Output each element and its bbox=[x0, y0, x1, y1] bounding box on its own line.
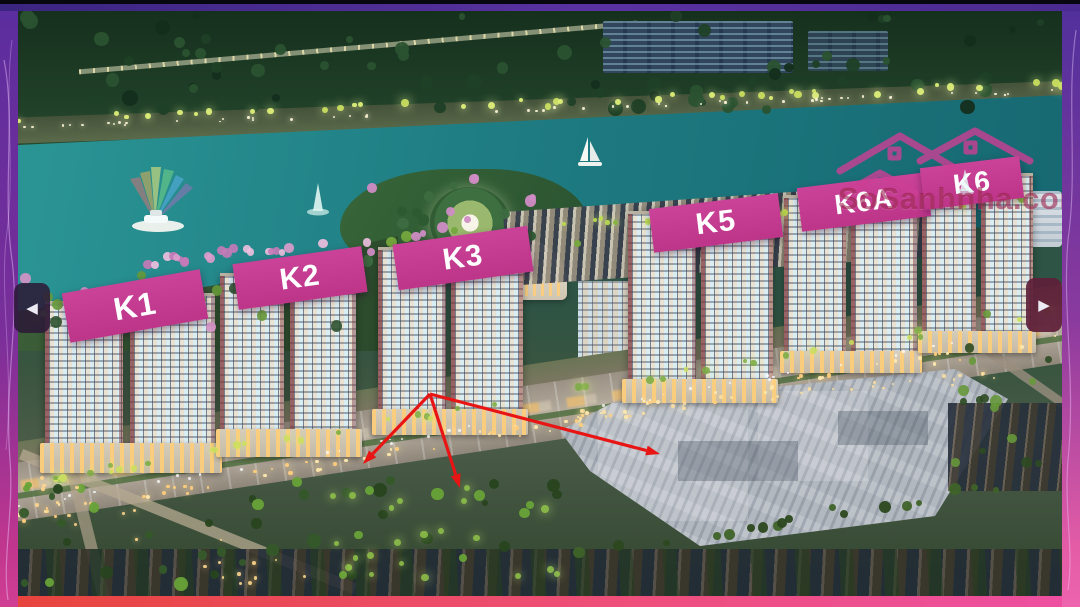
aerial-render-photo: K1 K2 K3 K5 K6A K6 bbox=[18, 11, 1062, 596]
decor-dot bbox=[386, 476, 395, 485]
decor-dot bbox=[397, 498, 403, 504]
decor-dot bbox=[526, 501, 534, 509]
decor-dot bbox=[299, 489, 309, 499]
podium-k6 bbox=[918, 331, 1036, 353]
podium-k3 bbox=[372, 409, 528, 435]
previous-image-button[interactable]: ◀ bbox=[14, 283, 50, 333]
chevron-left-icon: ◀ bbox=[26, 299, 38, 317]
decor-dot bbox=[122, 512, 125, 515]
decor-dot bbox=[489, 479, 499, 489]
decor-dot bbox=[993, 377, 995, 379]
bottom-gradient-bar bbox=[0, 596, 1080, 607]
next-image-button[interactable]: ▶ bbox=[1026, 278, 1062, 332]
distant-buildings bbox=[808, 31, 888, 71]
label-text: K3 bbox=[441, 238, 486, 277]
decor-dot bbox=[547, 479, 560, 492]
label-text: K5 bbox=[694, 204, 738, 243]
chevron-right-icon: ▶ bbox=[1038, 296, 1050, 314]
decor-dot bbox=[365, 486, 374, 495]
decor-dot bbox=[378, 510, 388, 520]
decor-dot bbox=[373, 483, 386, 496]
listing-photo-viewer: K1 K2 K3 K5 K6A K6 bbox=[0, 0, 1080, 607]
decor-dot bbox=[519, 508, 529, 518]
podium-k1 bbox=[40, 443, 222, 473]
podium-k5 bbox=[622, 379, 778, 403]
decor-dot bbox=[249, 495, 257, 503]
decor-dot bbox=[420, 531, 428, 539]
decor-dot bbox=[482, 500, 488, 506]
decor-dot bbox=[421, 533, 433, 545]
decor-dot bbox=[67, 514, 70, 517]
podium-k2 bbox=[216, 429, 362, 457]
decor-dot bbox=[349, 492, 356, 499]
decor-dot bbox=[461, 498, 467, 504]
decor-dot bbox=[389, 505, 395, 511]
decor-dot bbox=[57, 519, 65, 527]
bottom-villas bbox=[18, 549, 1062, 596]
decor-dot bbox=[473, 535, 479, 541]
decor-dot bbox=[74, 523, 78, 527]
decor-dot bbox=[334, 541, 339, 546]
decor-dot bbox=[251, 518, 262, 529]
decor-dot bbox=[252, 499, 264, 511]
label-text: K2 bbox=[278, 258, 323, 297]
decor-dot bbox=[133, 509, 136, 512]
decor-dot bbox=[354, 531, 363, 540]
plaza-block bbox=[838, 411, 928, 445]
plaza-block bbox=[678, 441, 798, 481]
decor-dot bbox=[438, 528, 444, 534]
decor-dot bbox=[464, 485, 470, 491]
decor-dot bbox=[145, 531, 153, 539]
decor-dot bbox=[307, 534, 321, 548]
villa-cluster bbox=[948, 403, 1062, 491]
decor-dot bbox=[431, 488, 444, 501]
decor-dot bbox=[552, 490, 561, 499]
decor-dot bbox=[663, 540, 669, 546]
podium-k6a bbox=[780, 351, 922, 373]
decor-dot bbox=[63, 538, 71, 546]
decor-dot bbox=[474, 490, 485, 501]
watermark-brand: SoSanhnha.com bbox=[838, 181, 1062, 217]
top-purple-bar bbox=[0, 4, 1080, 11]
label-text: K1 bbox=[111, 284, 160, 328]
decor-dot bbox=[394, 539, 401, 546]
right-purple-border bbox=[1062, 4, 1080, 607]
decor-dot bbox=[541, 505, 549, 513]
decor-dot bbox=[342, 488, 352, 498]
decor-dot bbox=[330, 493, 336, 499]
decor-dot bbox=[135, 538, 137, 540]
distant-buildings bbox=[603, 21, 793, 73]
